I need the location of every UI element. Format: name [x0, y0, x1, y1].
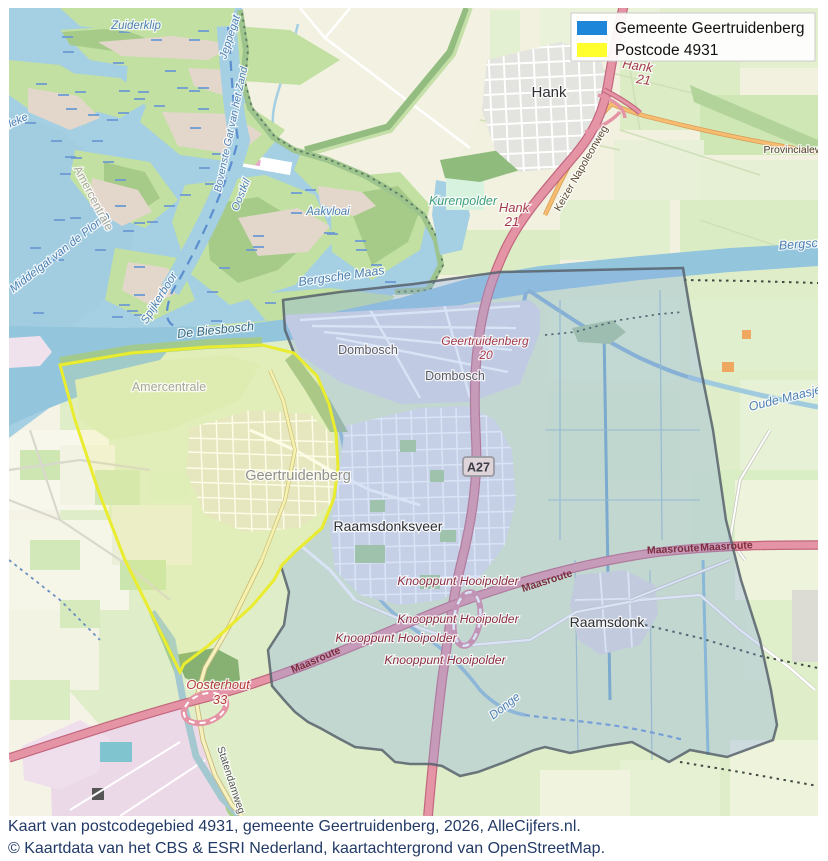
svg-text:Raamsdonk: Raamsdonk — [570, 614, 646, 630]
svg-text:33: 33 — [213, 692, 227, 707]
svg-text:Oosterhout: Oosterhout — [186, 677, 250, 692]
svg-text:Bergsch: Bergsch — [778, 235, 825, 252]
svg-text:20: 20 — [478, 348, 493, 362]
svg-text:21: 21 — [504, 214, 519, 229]
svg-text:Provincialew: Provincialew — [764, 144, 823, 156]
svg-text:Knooppunt Hooipolder: Knooppunt Hooipolder — [335, 631, 457, 645]
svg-text:Dombosch: Dombosch — [425, 369, 485, 383]
svg-text:Aakvloai: Aakvloai — [305, 206, 350, 218]
svg-text:Geertruidenberg: Geertruidenberg — [441, 334, 529, 348]
svg-text:A27: A27 — [467, 461, 490, 475]
svg-text:Zuiderklip: Zuiderklip — [110, 20, 161, 32]
svg-text:Knooppunt Hooipolder: Knooppunt Hooipolder — [397, 612, 519, 626]
svg-text:Dombosch: Dombosch — [338, 343, 398, 357]
svg-text:21: 21 — [634, 71, 651, 88]
svg-text:Gemeente Geertruidenberg: Gemeente Geertruidenberg — [615, 20, 805, 37]
svg-text:Knooppunt Hooipolder: Knooppunt Hooipolder — [384, 653, 506, 667]
svg-text:Hank: Hank — [531, 84, 567, 101]
svg-text:Amercentrale: Amercentrale — [132, 380, 206, 394]
svg-text:Kurenpolder: Kurenpolder — [429, 194, 498, 208]
svg-text:Geertruidenberg: Geertruidenberg — [245, 468, 351, 484]
svg-text:Raamsdonksveer: Raamsdonksveer — [334, 518, 443, 534]
svg-text:Hank: Hank — [499, 200, 531, 215]
svg-text:Knooppunt Hooipolder: Knooppunt Hooipolder — [397, 574, 519, 588]
svg-text:Postcode 4931: Postcode 4931 — [615, 42, 718, 59]
